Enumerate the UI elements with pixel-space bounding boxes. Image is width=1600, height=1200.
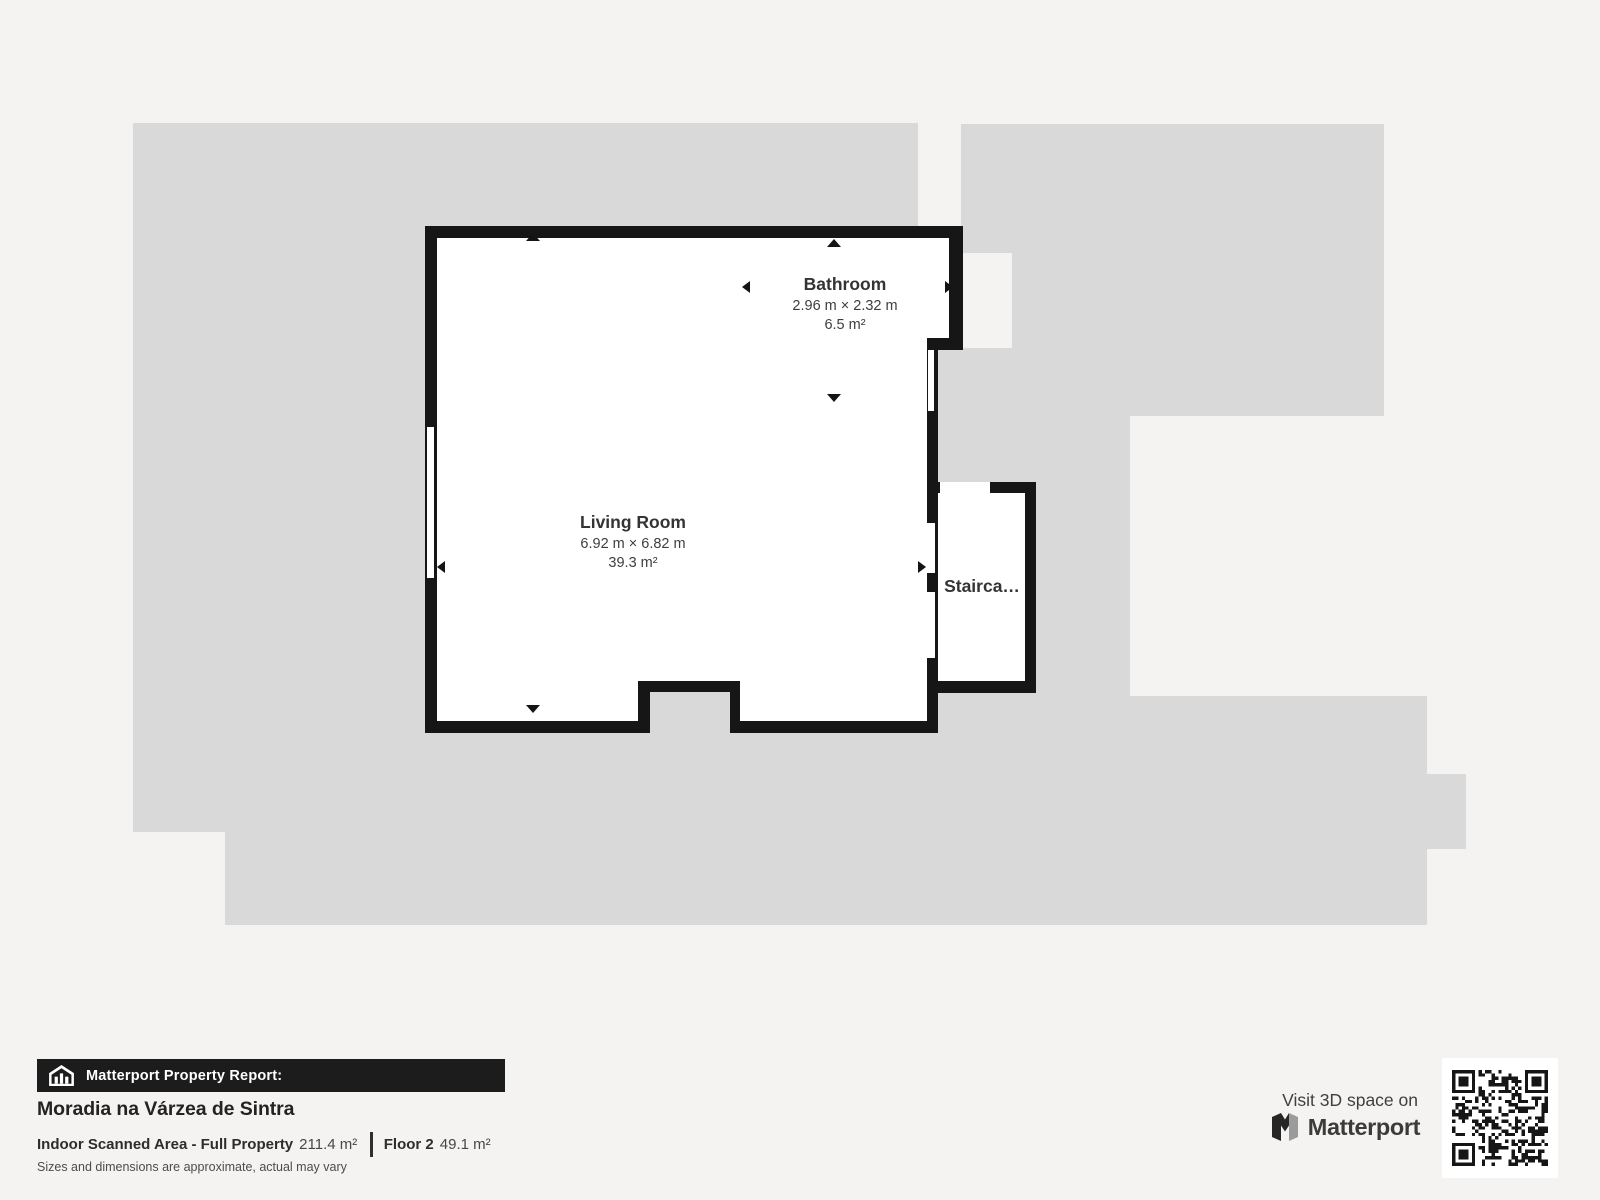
measure-arrow-right-icon: [945, 281, 953, 293]
underlay-shape: [1427, 774, 1466, 849]
door-opening: [927, 592, 935, 658]
room-label-staircase: Stairca…: [944, 575, 1020, 598]
door-opening: [928, 350, 934, 411]
banner-label: Matterport Property Report:: [86, 1068, 282, 1084]
room-dimensions: 6.92 m × 6.82 m: [580, 534, 686, 554]
floor-value: 49.1 m²: [440, 1136, 491, 1153]
underlay-shape: [426, 123, 918, 226]
measure-arrow-up-icon: [827, 239, 841, 247]
report-banner: Matterport Property Report:: [37, 1059, 505, 1092]
room-name: Bathroom: [792, 273, 897, 296]
room-label-living-room: Living Room 6.92 m × 6.82 m 39.3 m²: [580, 511, 686, 572]
measure-arrow-down-icon: [526, 705, 540, 713]
scanned-area-label: Indoor Scanned Area - Full Property: [37, 1136, 293, 1153]
measure-arrow-right-icon: [918, 561, 926, 573]
underlay-shape: [1012, 253, 1384, 416]
room-name: Living Room: [580, 511, 686, 534]
window-opening: [427, 427, 434, 578]
room-name: Stairca…: [944, 575, 1020, 598]
room-area: 39.3 m²: [580, 554, 686, 572]
scanned-area-value: 211.4 m²: [299, 1136, 357, 1153]
room-label-bathroom: Bathroom 2.96 m × 2.32 m 6.5 m²: [792, 273, 897, 334]
visit-3d-label: Visit 3D space on: [1282, 1090, 1418, 1111]
door-opening: [927, 523, 935, 573]
measure-arrow-left-icon: [742, 281, 750, 293]
underlay-shape: [133, 123, 426, 696]
disclaimer-text: Sizes and dimensions are approximate, ac…: [37, 1160, 347, 1174]
matterport-m-icon: [1271, 1112, 1299, 1142]
exterior-corner: [938, 350, 963, 415]
area-info-row: Indoor Scanned Area - Full Property 211.…: [37, 1132, 491, 1157]
measure-arrow-up-icon: [526, 233, 540, 241]
matterport-logo: Matterport: [1271, 1112, 1420, 1142]
house-report-icon: [49, 1065, 74, 1086]
notch-exterior: [650, 692, 730, 733]
floor-plan-report-page: Living Room 6.92 m × 6.82 m 39.3 m² Bath…: [0, 0, 1600, 1200]
underlay-shape: [961, 124, 1384, 253]
measure-arrow-down-icon: [827, 394, 841, 402]
underlay-shape: [133, 696, 225, 832]
room-area: 6.5 m²: [792, 316, 897, 334]
measure-arrow-left-icon: [437, 561, 445, 573]
wall-segment: [927, 338, 963, 350]
property-name: Moradia na Várzea de Sintra: [37, 1098, 294, 1121]
matterport-wordmark: Matterport: [1308, 1114, 1420, 1141]
room-dimensions: 2.96 m × 2.32 m: [792, 296, 897, 316]
floor-label: Floor 2: [384, 1136, 434, 1153]
divider: [370, 1132, 373, 1157]
qr-code: [1442, 1058, 1558, 1178]
stair-opening: [940, 482, 990, 493]
door-opening: [731, 239, 739, 396]
